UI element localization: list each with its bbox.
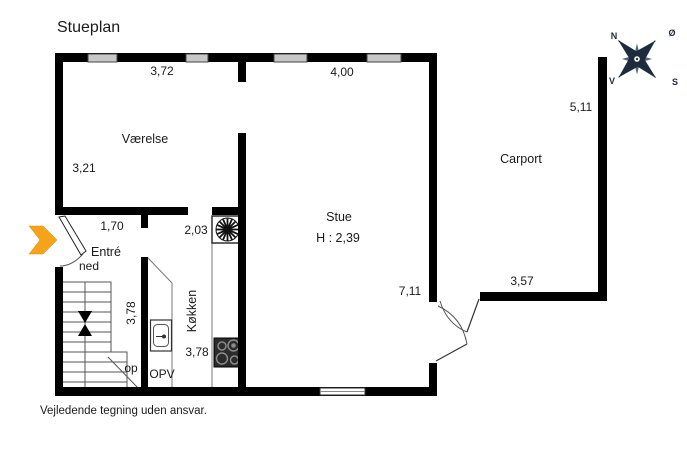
sink-icon	[151, 320, 172, 351]
dim-koekken-depth: 3,78	[185, 345, 209, 359]
compass-rose-icon: N Ø S V	[600, 22, 678, 97]
wall-entre-koekken-stub	[141, 215, 148, 228]
dim-trappe-depth: 3,78	[124, 301, 138, 325]
terrace-door-lower	[436, 306, 467, 361]
dishwasher-label: OPV	[149, 367, 174, 381]
stair-direction-arrow-down-icon	[78, 311, 92, 323]
stair-outline	[63, 282, 127, 387]
room-label-koekken: Køkken	[185, 290, 199, 332]
stairs-up-label: op	[124, 361, 138, 375]
wall-koekken-stue	[238, 133, 246, 387]
compass-south-label: S	[672, 77, 678, 87]
stair-steps	[63, 292, 127, 382]
compass-north-label: N	[611, 31, 618, 41]
wall-bottom	[55, 387, 437, 396]
window-stue-2	[367, 54, 401, 62]
dim-entre-width: 1,70	[100, 219, 124, 233]
dim-koekken-width: 2,03	[184, 223, 208, 237]
dim-stue-depth: 7,11	[399, 284, 422, 298]
wall-vaerelse-bottom	[55, 207, 188, 215]
stair-direction-arrow-up-icon	[78, 324, 92, 336]
room-label-entre: Entré	[91, 245, 121, 259]
wall-left-lower	[55, 267, 63, 396]
wall-koekken-top	[212, 207, 246, 215]
floorplan-page: N Ø S V Stueplan 3,72 4,00 5,11 3,21 1,7…	[0, 0, 687, 457]
window-stue-bottom	[320, 388, 365, 395]
room-label-vaerelse: Værelse	[122, 132, 169, 146]
dim-carport-depth: 5,11	[570, 100, 593, 114]
page-title: Stueplan	[57, 19, 120, 36]
wall-carport-right	[598, 57, 607, 301]
dim-vaerelse-width: 3,72	[150, 64, 174, 78]
compass-west-label: V	[609, 76, 615, 86]
room-label-stue: Stue	[326, 210, 352, 224]
dim-vaerelse-depth: 3,21	[72, 161, 96, 175]
wall-right-upper	[429, 53, 437, 302]
window-vaerelse-2	[186, 54, 208, 62]
wall-entre-koekken	[141, 257, 148, 387]
dim-stue-width: 4,00	[330, 65, 354, 79]
window-vaerelse-1	[88, 54, 117, 62]
terrace-door-upper	[440, 299, 479, 332]
disclaimer-note: Vejledende tegning uden ansvar.	[40, 405, 207, 417]
stove-icon	[214, 338, 241, 367]
dim-carport-width: 3,57	[510, 274, 534, 288]
wall-carport-bottom	[480, 292, 607, 301]
entrance-arrow-icon	[29, 226, 57, 254]
compass-east-label: Ø	[668, 28, 675, 38]
stue-ceiling-height-label: H : 2,39	[316, 231, 360, 245]
floorplan-canvas: N Ø S V Stueplan 3,72 4,00 5,11 3,21 1,7…	[0, 0, 687, 457]
wall-vaerelse-stue-stub	[238, 62, 246, 82]
walls	[55, 53, 607, 396]
window-stue-1	[274, 54, 307, 62]
wall-right-lower	[429, 363, 437, 396]
wall-left-upper	[55, 53, 63, 215]
stairs-down-label: ned	[79, 259, 99, 273]
room-label-carport: Carport	[500, 152, 542, 166]
